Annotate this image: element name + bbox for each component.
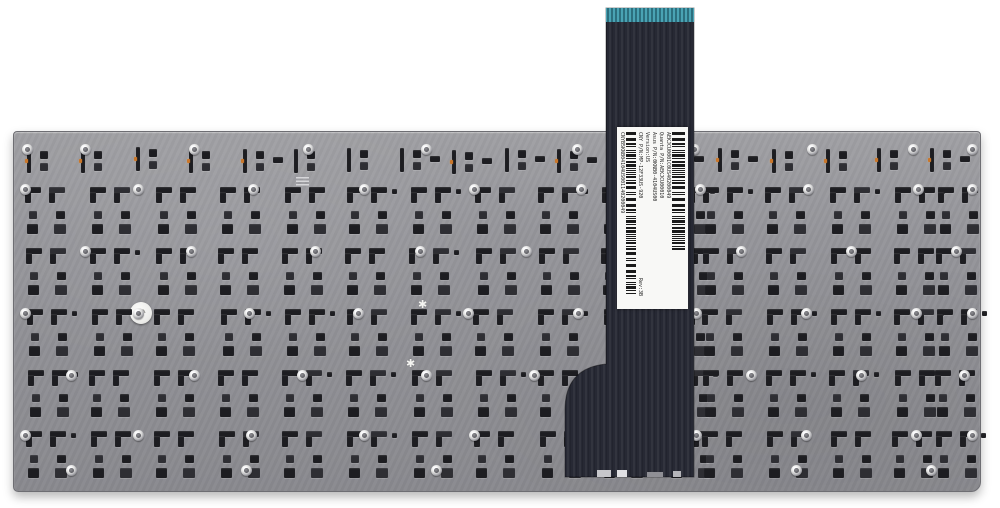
key-clip-cutout: [256, 151, 264, 159]
key-clip-cutout: [705, 224, 716, 234]
key-clip-cutout: [346, 375, 352, 386]
key-clip-cutout: [287, 224, 298, 234]
rivet: [967, 430, 978, 441]
key-clip-cutout: [52, 375, 58, 386]
key-clip-cutout: [28, 468, 39, 478]
key-clip-cutout: [178, 375, 184, 386]
key-clip-cutout: [894, 314, 900, 325]
key-clip-cutout: [411, 192, 417, 203]
key-clip-cutout: [876, 311, 881, 316]
key-clip-cutout: [731, 150, 739, 158]
key-clip-cutout: [347, 436, 353, 447]
key-clip-cutout: [57, 272, 66, 280]
key-clip-cutout: [705, 285, 716, 295]
cable-contact-strip: [606, 8, 694, 22]
key-clip-cutout: [306, 436, 312, 447]
key-clip-cutout: [313, 272, 322, 280]
key-clip-cutout: [71, 433, 76, 438]
rivet: [310, 246, 321, 257]
key-clip-cutout: [768, 407, 779, 417]
keyboard-plate: ✱ ✱: [13, 131, 981, 492]
key-clip-cutout: [726, 314, 732, 325]
key-clip-cutout: [415, 333, 423, 341]
barcode: [626, 132, 636, 294]
key-clip-cutout: [941, 333, 949, 341]
key-clip-cutout: [505, 455, 514, 463]
key-clip-cutout: [943, 150, 951, 158]
product-photo: ✱ ✱ AEKJCU0001C0US40200049 Quanta P/N:AE…: [0, 0, 1000, 508]
key-clip-cutout: [456, 311, 461, 316]
key-clip-cutout: [218, 253, 224, 264]
key-clip-cutout: [185, 333, 194, 341]
key-clip-cutout: [350, 394, 358, 402]
key-clip-cutout: [731, 468, 743, 478]
key-clip-cutout: [360, 150, 368, 158]
rivet: [469, 430, 480, 441]
rivet: [908, 144, 919, 155]
key-clip-cutout: [924, 224, 936, 234]
triple-line-stamp: [296, 177, 309, 186]
key-clip-cutout: [770, 394, 778, 402]
key-clip-cutout: [284, 285, 295, 295]
key-clip-cutout: [727, 375, 733, 386]
rivet: [469, 184, 480, 195]
key-clip-cutout: [831, 407, 842, 417]
key-clip-cutout: [225, 333, 233, 341]
key-clip-cutout: [435, 314, 441, 325]
key-clip-cutout: [414, 468, 425, 478]
key-clip-cutout: [960, 436, 966, 447]
solder-dot: [187, 159, 190, 163]
key-clip-cutout: [92, 314, 98, 325]
key-clip-cutout: [505, 148, 509, 172]
key-clip-cutout: [456, 189, 461, 194]
key-clip-cutout: [797, 394, 806, 402]
key-clip-cutout: [58, 333, 67, 341]
key-clip-cutout: [502, 346, 514, 356]
key-clip-cutout: [349, 346, 360, 356]
key-clip-cutout: [378, 211, 387, 219]
rivet: [846, 246, 857, 257]
key-clip-cutout: [220, 192, 226, 203]
key-clip-cutout: [539, 253, 545, 264]
key-clip-cutout: [897, 224, 908, 234]
key-clip-cutout: [294, 149, 298, 173]
key-clip-cutout: [30, 272, 38, 280]
key-clip-cutout: [72, 311, 77, 316]
key-clip-cutout: [180, 192, 186, 203]
key-clip-cutout: [378, 455, 387, 463]
key-clip-cutout: [862, 455, 871, 463]
key-clip-cutout: [919, 375, 925, 386]
key-clip-cutout: [500, 253, 506, 264]
key-clip-cutout: [222, 272, 230, 280]
key-clip-cutout: [925, 272, 934, 280]
key-clip-cutout: [499, 192, 505, 203]
solder-dot: [450, 160, 453, 164]
key-clip-cutout: [156, 407, 167, 417]
key-clip-cutout: [284, 407, 295, 417]
key-clip-cutout: [454, 250, 459, 255]
key-clip-cutout: [29, 346, 40, 356]
rivet: [951, 246, 962, 257]
key-clip-cutout: [154, 436, 160, 447]
key-clip-cutout: [923, 346, 935, 356]
key-clip-cutout: [220, 285, 231, 295]
key-clip-cutout: [94, 163, 102, 171]
rivet: [20, 184, 31, 195]
key-clip-cutout: [535, 156, 545, 162]
key-clip-cutout: [121, 211, 130, 219]
rivet: [911, 430, 922, 441]
rivet: [431, 465, 442, 476]
key-clip-cutout: [862, 272, 871, 280]
key-clip-cutout: [500, 375, 506, 386]
rivet: [22, 144, 33, 155]
cable-end-tab: [673, 471, 681, 477]
key-clip-cutout: [416, 394, 424, 402]
key-clip-cutout: [415, 211, 423, 219]
key-clip-cutout: [31, 333, 39, 341]
key-clip-cutout: [479, 211, 487, 219]
key-clip-cutout: [330, 311, 335, 316]
key-clip-cutout: [351, 333, 359, 341]
rivet: [133, 184, 144, 195]
key-clip-cutout: [289, 333, 297, 341]
key-clip-cutout: [392, 433, 397, 438]
key-clip-cutout: [158, 455, 166, 463]
key-clip-cutout: [242, 375, 248, 386]
key-clip-cutout: [94, 272, 102, 280]
key-clip-cutout: [222, 224, 233, 234]
key-clip-cutout: [540, 346, 551, 356]
key-clip-cutout: [861, 211, 870, 219]
rivet: [801, 308, 812, 319]
key-clip-cutout: [440, 224, 452, 234]
part-label-content: AEKJCU0001C0US40200049 Quanta P/N:AEKJCU…: [617, 127, 688, 309]
key-clip-cutout: [859, 224, 871, 234]
key-clip-cutout: [732, 285, 744, 295]
key-clip-cutout: [314, 346, 326, 356]
rivet: [244, 308, 255, 319]
key-clip-cutout: [855, 314, 861, 325]
key-clip-cutout: [374, 285, 386, 295]
key-clip-cutout: [542, 211, 550, 219]
cable-end-tab: [597, 470, 611, 477]
key-clip-cutout: [834, 211, 842, 219]
key-clip-cutout: [733, 455, 742, 463]
key-clip-cutout: [475, 346, 486, 356]
key-clip-cutout: [414, 407, 425, 417]
key-clip-cutout: [51, 314, 57, 325]
rivet: [746, 370, 757, 381]
solder-dot: [25, 159, 28, 163]
key-clip-cutout: [798, 333, 807, 341]
key-clip-cutout: [967, 455, 976, 463]
key-clip-cutout: [183, 346, 195, 356]
key-clip-cutout: [115, 436, 121, 447]
rivet: [189, 144, 200, 155]
key-clip-cutout: [767, 224, 778, 234]
key-clip-cutout: [923, 285, 935, 295]
key-clip-cutout: [940, 224, 951, 234]
key-clip-cutout: [351, 211, 359, 219]
key-clip-cutout: [443, 455, 452, 463]
key-clip-cutout: [185, 224, 197, 234]
key-clip-cutout: [316, 211, 325, 219]
key-clip-cutout: [544, 455, 552, 463]
key-clip-cutout: [286, 272, 294, 280]
key-clip-cutout: [59, 394, 68, 402]
key-clip-cutout: [898, 333, 906, 341]
key-clip-cutout: [894, 468, 905, 478]
key-clip-cutout: [249, 224, 261, 234]
key-clip-cutout: [895, 192, 901, 203]
rivet: [353, 308, 364, 319]
key-clip-cutout: [443, 394, 452, 402]
key-clip-cutout: [282, 253, 288, 264]
key-clip-cutout: [937, 407, 948, 417]
key-clip-cutout: [835, 333, 843, 341]
key-clip-cutout: [541, 285, 552, 295]
key-clip-cutout: [392, 189, 397, 194]
key-clip-cutout: [981, 433, 986, 438]
rivet: [359, 430, 370, 441]
rivet: [791, 465, 802, 476]
key-clip-cutout: [518, 162, 526, 170]
key-clip-cutout: [480, 272, 488, 280]
key-clip-cutout: [833, 394, 841, 402]
key-clip-cutout: [506, 211, 515, 219]
key-clip-cutout: [771, 333, 779, 341]
rivet: [186, 246, 197, 257]
key-clip-cutout: [942, 211, 950, 219]
key-clip-cutout: [96, 333, 104, 341]
rivet: [463, 308, 474, 319]
key-clip-cutout: [50, 436, 56, 447]
key-clip-cutout: [926, 394, 935, 402]
key-clip-cutout: [890, 162, 898, 170]
key-clip-cutout: [769, 211, 777, 219]
rivet: [959, 370, 970, 381]
key-clip-cutout: [732, 407, 744, 417]
key-clip-cutout: [707, 272, 715, 280]
rivet: [133, 430, 144, 441]
key-clip-cutout: [371, 192, 377, 203]
key-clip-cutout: [411, 285, 422, 295]
key-clip-cutout: [121, 346, 133, 356]
key-clip-cutout: [286, 394, 294, 402]
key-clip-cutout: [477, 224, 488, 234]
key-clip-cutout: [477, 333, 485, 341]
key-clip-cutout: [93, 468, 104, 478]
label-version: Version:US: [644, 132, 650, 162]
key-clip-cutout: [504, 333, 513, 341]
key-clip-cutout: [412, 436, 418, 447]
rivet: [133, 308, 144, 319]
key-clip-cutout: [926, 211, 935, 219]
rivet: [967, 144, 978, 155]
key-clip-cutout: [938, 468, 949, 478]
solder-dot: [875, 158, 878, 162]
rivet: [967, 184, 978, 195]
key-clip-cutout: [707, 394, 715, 402]
key-clip-cutout: [50, 253, 56, 264]
key-clip-cutout: [223, 455, 231, 463]
key-clip-cutout: [57, 407, 69, 417]
key-clip-cutout: [540, 407, 551, 417]
key-clip-cutout: [538, 314, 544, 325]
key-clip-cutout: [413, 162, 421, 170]
key-clip-cutout: [939, 394, 947, 402]
key-clip-cutout: [943, 162, 951, 170]
key-clip-cutout: [92, 285, 103, 295]
key-clip-cutout: [835, 272, 843, 280]
key-clip-cutout: [282, 375, 288, 386]
key-clip-cutout: [345, 253, 351, 264]
label-cny-pn: CNY P/N:MP-12F33US-920: [637, 132, 643, 198]
key-clip-cutout: [256, 163, 264, 171]
cable-end-tab: [617, 470, 627, 477]
key-clip-cutout: [316, 333, 325, 341]
key-clip-cutout: [400, 148, 404, 172]
key-clip-cutout: [791, 436, 797, 447]
key-clip-cutout: [538, 192, 544, 203]
key-clip-cutout: [476, 375, 482, 386]
key-clip-cutout: [771, 455, 779, 463]
key-clip-cutout: [89, 375, 95, 386]
key-clip-cutout: [114, 253, 120, 264]
key-clip-cutout: [376, 272, 385, 280]
key-clip-cutout: [732, 224, 744, 234]
key-clip-cutout: [91, 436, 97, 447]
key-clip-cutout: [480, 394, 488, 402]
key-clip-cutout: [221, 468, 232, 478]
key-clip-cutout: [705, 407, 716, 417]
key-clip-cutout: [113, 375, 119, 386]
key-clip-cutout: [119, 224, 131, 234]
label-serial-top: AEKJCU0001C0US40200049: [665, 132, 671, 304]
key-clip-cutout: [832, 224, 843, 234]
rivet: [421, 144, 432, 155]
key-clip-cutout: [706, 333, 714, 341]
key-clip-cutout: [252, 333, 261, 341]
key-clip-cutout: [94, 151, 102, 159]
key-clip-cutout: [289, 211, 297, 219]
key-clip-cutout: [119, 285, 131, 295]
key-clip-cutout: [860, 346, 872, 356]
key-clip-cutout: [391, 372, 396, 377]
key-clip-cutout: [734, 272, 743, 280]
key-clip-cutout: [791, 314, 797, 325]
key-clip-cutout: [430, 156, 440, 162]
key-clip-cutout: [542, 468, 553, 478]
key-clip-cutout: [416, 455, 424, 463]
rivet: [359, 184, 370, 195]
key-clip-cutout: [765, 192, 771, 203]
label-serial-bottom: CNYB5KNB04104US001140200049: [619, 132, 625, 304]
key-clip-cutout: [521, 372, 526, 377]
key-clip-cutout: [831, 253, 837, 264]
key-clip-cutout: [118, 407, 130, 417]
key-clip-cutout: [313, 394, 322, 402]
key-clip-cutout: [727, 253, 733, 264]
key-clip-cutout: [503, 468, 515, 478]
key-clip-cutout: [221, 314, 227, 325]
solder-dot: [716, 158, 719, 162]
key-clip-cutout: [785, 151, 793, 159]
key-clip-cutout: [436, 436, 442, 447]
key-clip-cutout: [90, 253, 96, 264]
key-clip-cutout: [441, 468, 453, 478]
key-clip-cutout: [311, 407, 323, 417]
key-clip-cutout: [441, 407, 453, 417]
key-clip-cutout: [476, 468, 487, 478]
label-rev: Rev:3B: [637, 278, 643, 296]
key-clip-cutout: [371, 314, 377, 325]
key-clip-cutout: [960, 156, 970, 162]
part-label: AEKJCU0001C0US40200049 Quanta P/N:AEKJCU…: [617, 127, 688, 309]
key-clip-cutout: [347, 192, 353, 203]
key-clip-cutout: [734, 211, 743, 219]
key-clip-cutout: [938, 192, 944, 203]
key-clip-cutout: [349, 224, 360, 234]
key-clip-cutout: [40, 163, 48, 171]
key-clip-cutout: [796, 211, 805, 219]
rivet: [303, 144, 314, 155]
rivet: [20, 430, 31, 441]
key-clip-cutout: [936, 436, 942, 447]
rivet: [297, 370, 308, 381]
key-clip-cutout: [540, 436, 546, 447]
key-clip-cutout: [798, 455, 807, 463]
key-clip-cutout: [795, 407, 807, 417]
key-clip-cutout: [122, 455, 131, 463]
key-clip-cutout: [748, 156, 758, 162]
key-clip-cutout: [839, 163, 847, 171]
key-clip-cutout: [149, 149, 157, 157]
key-clip-cutout: [121, 272, 130, 280]
key-clip-cutout: [433, 253, 439, 264]
key-clip-cutout: [505, 407, 517, 417]
key-clip-cutout: [435, 192, 441, 203]
rivet: [66, 370, 77, 381]
key-clip-cutout: [249, 272, 258, 280]
key-clip-cutout: [347, 314, 353, 325]
key-clip-cutout: [833, 468, 844, 478]
key-clip-cutout: [966, 346, 978, 356]
key-clip-cutout: [156, 346, 167, 356]
key-clip-cutout: [135, 250, 140, 255]
key-clip-cutout: [966, 394, 975, 402]
key-clip-cutout: [32, 394, 40, 402]
key-clip-cutout: [247, 407, 259, 417]
key-clip-cutout: [962, 192, 968, 203]
solder-dot: [928, 158, 931, 162]
key-clip-cutout: [178, 436, 184, 447]
key-clip-cutout: [896, 346, 907, 356]
rivet: [926, 465, 937, 476]
key-clip-cutout: [94, 346, 105, 356]
key-clip-cutout: [442, 333, 451, 341]
key-clip-cutout: [967, 224, 979, 234]
key-clip-cutout: [285, 192, 291, 203]
key-clip-cutout: [247, 285, 259, 295]
key-clip-cutout: [29, 211, 37, 219]
key-clip-cutout: [223, 346, 234, 356]
rivet: [415, 246, 426, 257]
key-clip-cutout: [250, 346, 262, 356]
